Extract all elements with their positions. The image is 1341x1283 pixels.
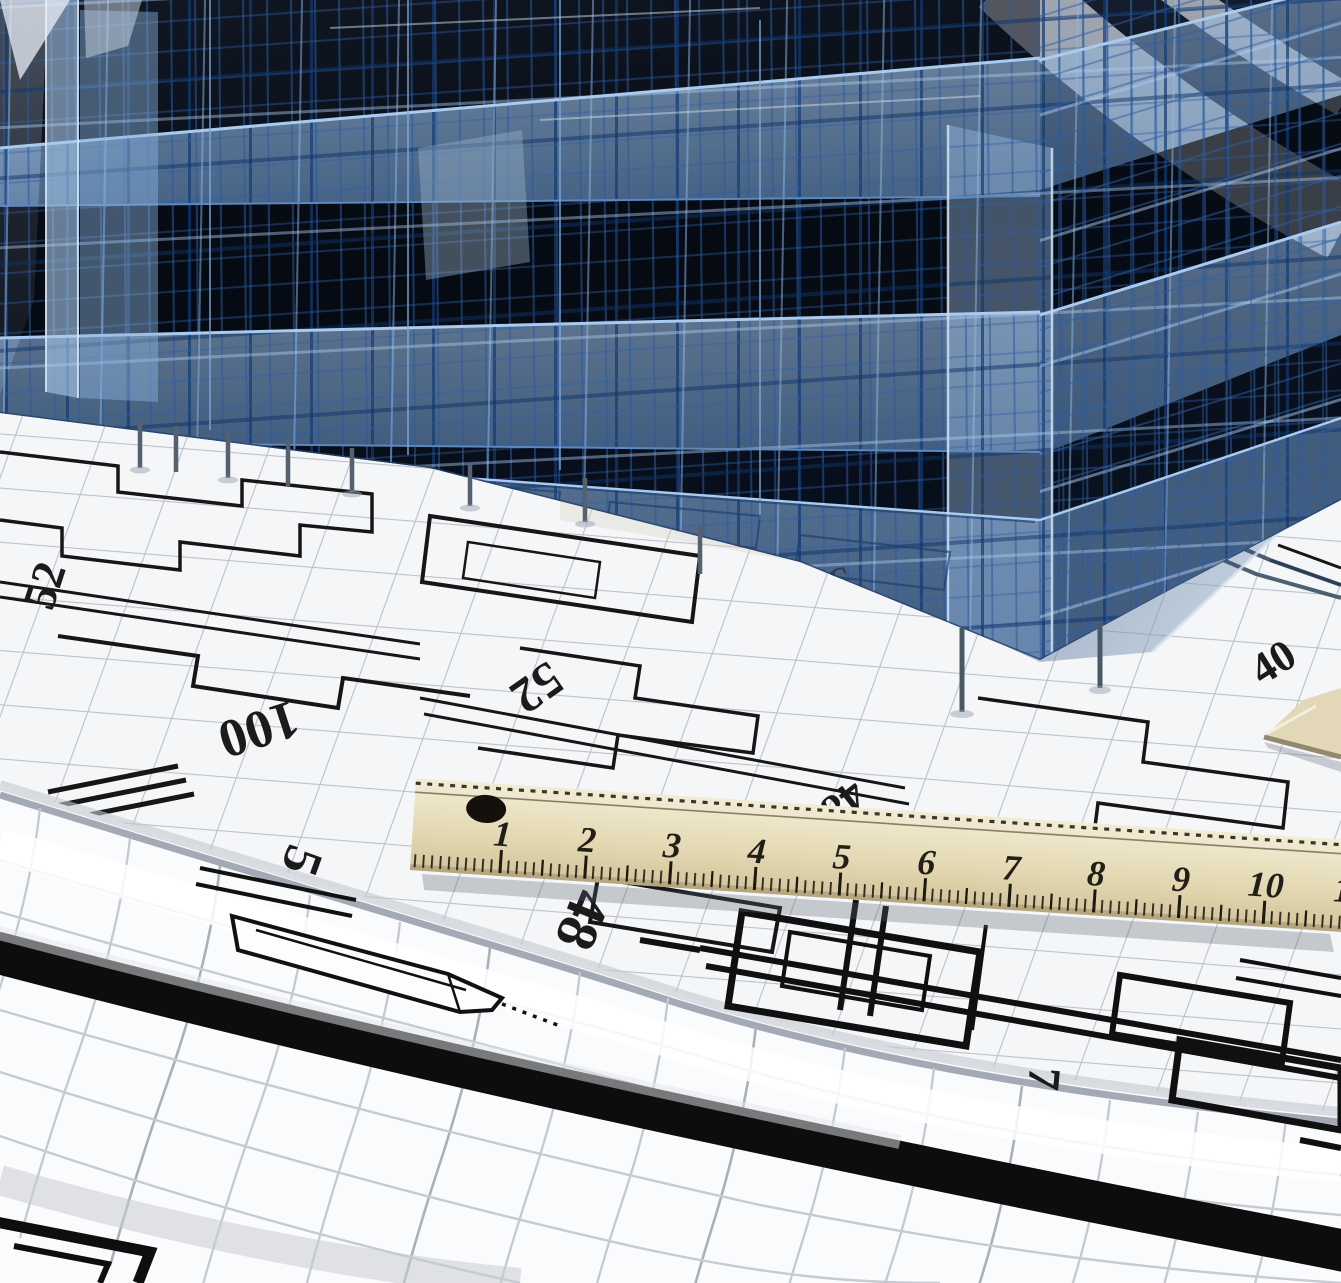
ruler-number-4: 4 xyxy=(746,830,768,871)
scene-photo: 52 100 52 48 40 40 xyxy=(0,0,1341,1283)
ruler-number-11: 11 xyxy=(1332,869,1341,911)
ruler-number-5: 5 xyxy=(831,836,852,877)
left-glass-column xyxy=(46,0,158,402)
ruler-number-3: 3 xyxy=(661,825,683,866)
dimension-7-roll: 7 xyxy=(1018,1065,1071,1092)
ruler-number-8: 8 xyxy=(1086,853,1107,894)
ruler-number-10: 10 xyxy=(1247,864,1286,906)
blueprint-scene-svg: 52 100 52 48 40 40 xyxy=(0,0,1341,1283)
glass-reflection xyxy=(418,130,530,280)
ruler-number-6: 6 xyxy=(916,842,937,883)
ruler-number-9: 9 xyxy=(1171,859,1192,900)
ruler-number-2: 2 xyxy=(576,819,598,860)
ruler-number-1: 1 xyxy=(492,814,513,855)
